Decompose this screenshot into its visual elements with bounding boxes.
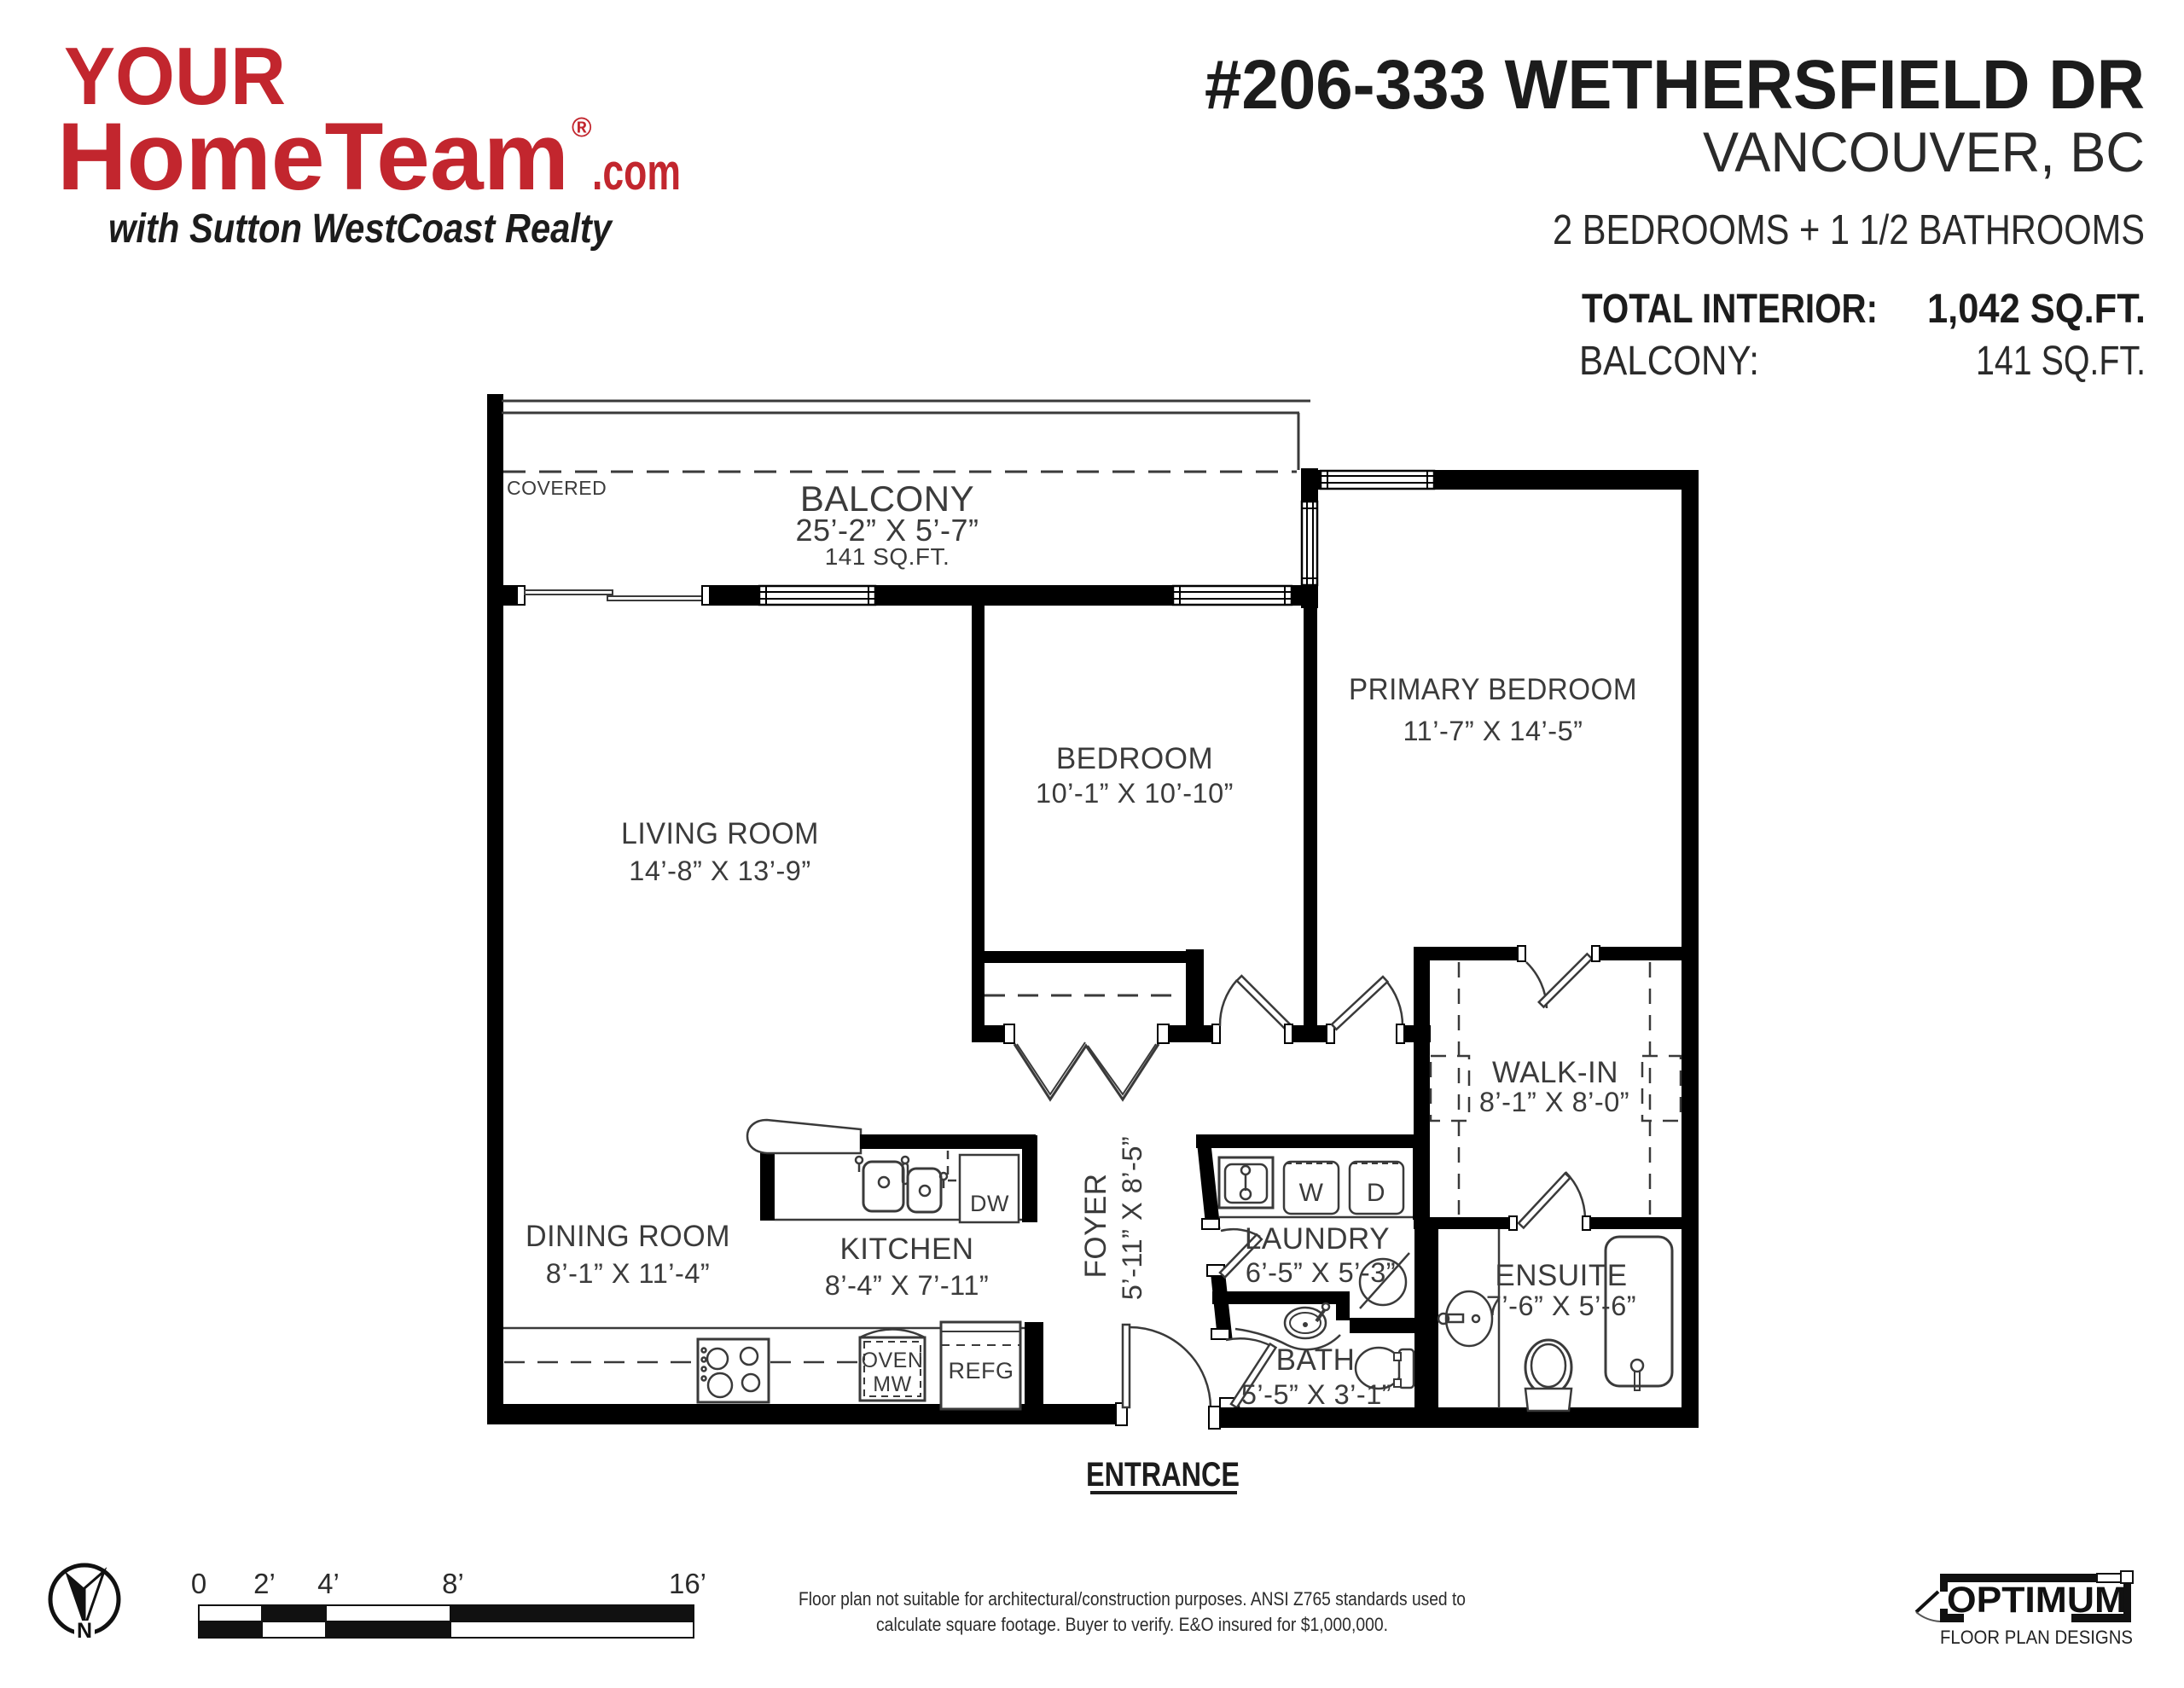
- svg-text:8’: 8’: [442, 1568, 464, 1599]
- svg-text:7’-6” X 5’-6”: 7’-6” X 5’-6”: [1486, 1291, 1636, 1321]
- svg-text:BALCONY:: BALCONY:: [1579, 339, 1759, 384]
- svg-text:8’-1” X 11’-4”: 8’-1” X 11’-4”: [546, 1258, 710, 1289]
- svg-text:D: D: [1367, 1179, 1385, 1207]
- svg-text:ENSUITE: ENSUITE: [1495, 1259, 1627, 1292]
- svg-text:2’: 2’: [253, 1568, 276, 1599]
- svg-text:11’-7” X 14’-5”: 11’-7” X 14’-5”: [1403, 716, 1583, 746]
- svg-text:OPTIMUM: OPTIMUM: [1947, 1580, 2126, 1621]
- svg-text:MW: MW: [873, 1372, 911, 1396]
- svg-text:KITCHEN: KITCHEN: [839, 1233, 973, 1266]
- svg-text:DW: DW: [970, 1191, 1009, 1216]
- svg-text:0: 0: [191, 1568, 206, 1599]
- svg-text:4’: 4’: [317, 1568, 340, 1599]
- svg-text:LAUNDRY: LAUNDRY: [1245, 1222, 1390, 1256]
- svg-text:141 SQ.FT.: 141 SQ.FT.: [825, 543, 950, 570]
- svg-text:DINING ROOM: DINING ROOM: [526, 1220, 730, 1253]
- svg-text:with Sutton WestCoast Realty: with Sutton WestCoast Realty: [108, 206, 613, 252]
- svg-text:VANCOUVER, BC: VANCOUVER, BC: [1703, 120, 2145, 183]
- svg-text:10’-1” X 10’-10”: 10’-1” X 10’-10”: [1036, 778, 1234, 809]
- svg-text:6’-5” X 5’-3”: 6’-5” X 5’-3”: [1246, 1257, 1396, 1288]
- svg-text:HomeTeam: HomeTeam: [57, 103, 569, 210]
- svg-text:14’-8” X 13’-9”: 14’-8” X 13’-9”: [629, 856, 810, 886]
- svg-text:®: ®: [572, 112, 592, 142]
- svg-text:calculate square footage. Buye: calculate square footage. Buyer to verif…: [876, 1614, 1388, 1635]
- svg-text:25’-2” X 5’-7”: 25’-2” X 5’-7”: [795, 513, 979, 548]
- svg-text:FLOOR PLAN DESIGNS: FLOOR PLAN DESIGNS: [1940, 1627, 2133, 1648]
- svg-text:#206-333 WETHERSFIELD DR: #206-333 WETHERSFIELD DR: [1205, 46, 2145, 124]
- svg-text:1,042 SQ.FT.: 1,042 SQ.FT.: [1927, 287, 2146, 332]
- svg-text:BATH: BATH: [1276, 1343, 1356, 1377]
- svg-text:LIVING ROOM: LIVING ROOM: [621, 817, 819, 850]
- svg-text:5’-11” X 8’-5”: 5’-11” X 8’-5”: [1117, 1136, 1147, 1300]
- svg-text:BEDROOM: BEDROOM: [1056, 742, 1213, 775]
- svg-text:PRIMARY BEDROOM: PRIMARY BEDROOM: [1349, 673, 1637, 706]
- svg-text:COVERED: COVERED: [507, 477, 607, 499]
- svg-text:2 BEDROOMS + 1 1/2 BATHROOMS: 2 BEDROOMS + 1 1/2 BATHROOMS: [1553, 207, 2145, 253]
- svg-text:TOTAL INTERIOR:: TOTAL INTERIOR:: [1582, 287, 1878, 332]
- svg-text:16’: 16’: [669, 1568, 706, 1599]
- svg-text:141 SQ.FT.: 141 SQ.FT.: [1976, 339, 2146, 384]
- svg-text:.com: .com: [592, 143, 681, 200]
- svg-text:8’-1” X 8’-0”: 8’-1” X 8’-0”: [1479, 1087, 1629, 1117]
- svg-text:ENTRANCE: ENTRANCE: [1086, 1456, 1240, 1494]
- svg-text:REFG: REFG: [948, 1358, 1014, 1383]
- svg-text:W: W: [1299, 1179, 1324, 1207]
- svg-text:N: N: [77, 1619, 92, 1643]
- svg-text:OVEN: OVEN: [862, 1349, 924, 1372]
- svg-text:FOYER: FOYER: [1079, 1173, 1112, 1278]
- svg-text:Floor plan not suitable for ar: Floor plan not suitable for architectura…: [799, 1588, 1466, 1610]
- svg-text:WALK-IN: WALK-IN: [1492, 1056, 1618, 1089]
- svg-text:8’-4” X 7’-11”: 8’-4” X 7’-11”: [825, 1270, 989, 1301]
- svg-text:5’-5” X 3’-1”: 5’-5” X 3’-1”: [1241, 1379, 1391, 1410]
